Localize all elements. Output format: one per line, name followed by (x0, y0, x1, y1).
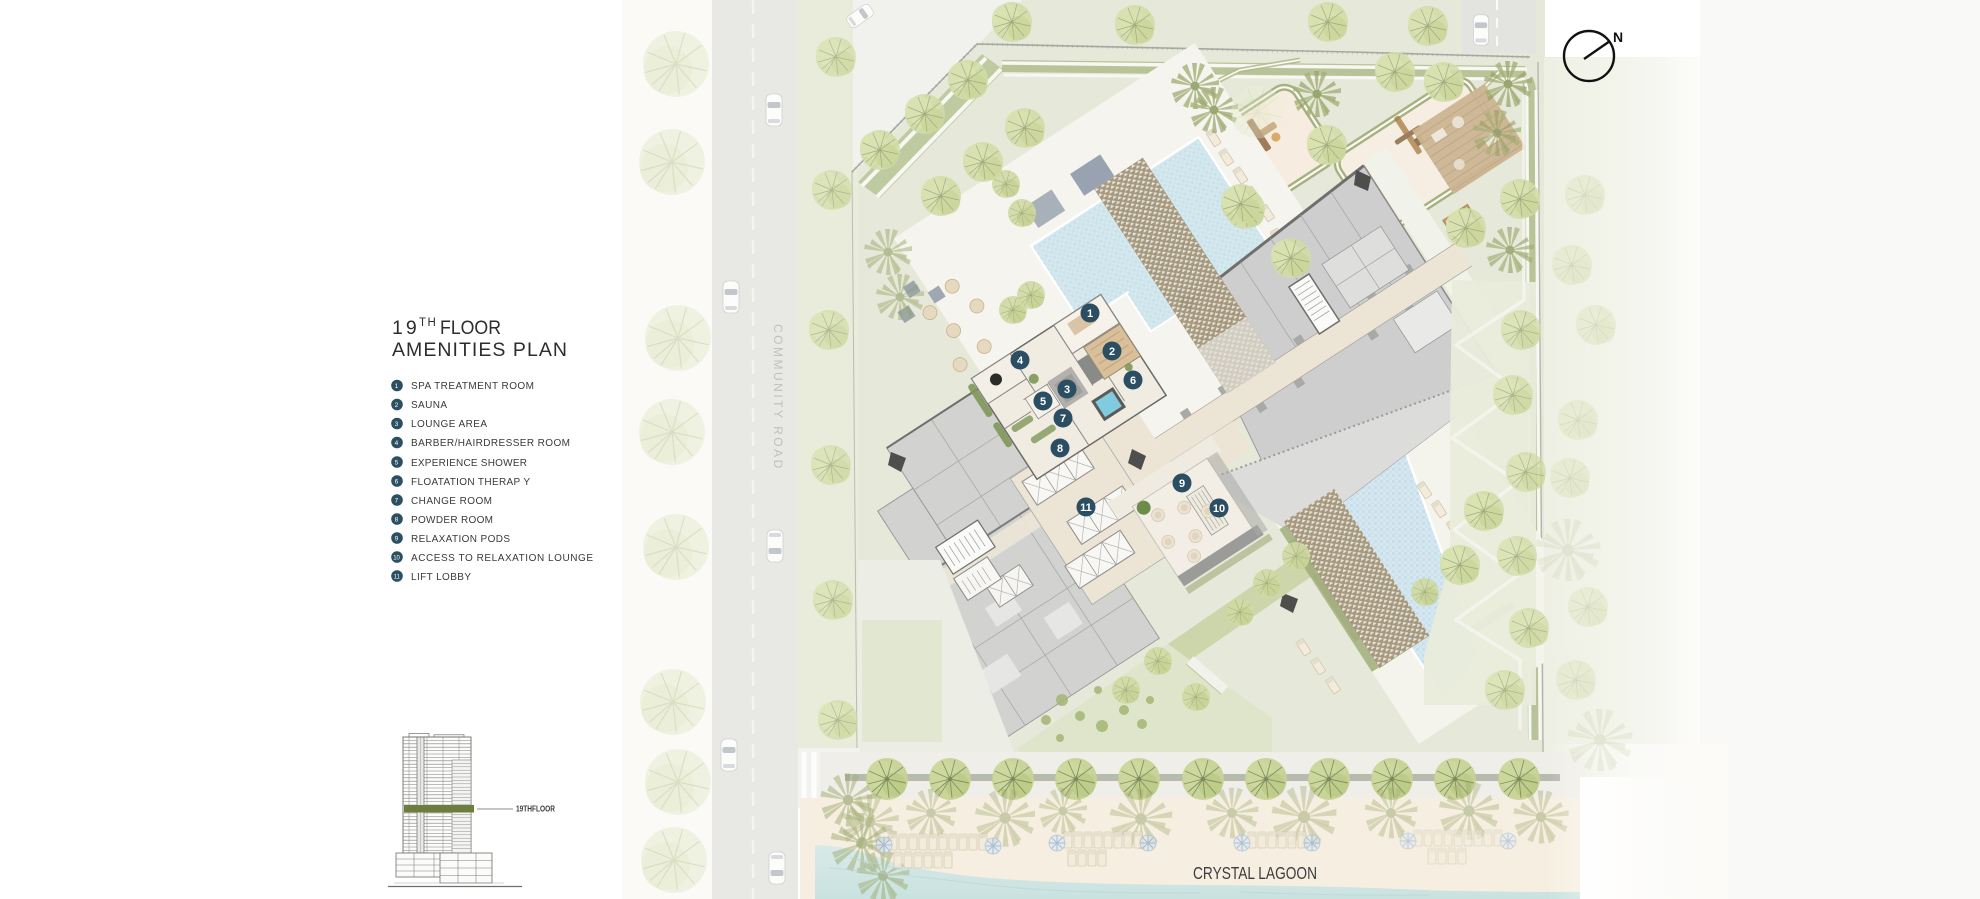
svg-text:1: 1 (395, 383, 399, 390)
svg-text:CRYSTAL LAGOON: CRYSTAL LAGOON (1193, 863, 1317, 883)
svg-text:5: 5 (1040, 396, 1046, 408)
svg-text:BARBER/HAIRDRESSER ROOM: BARBER/HAIRDRESSER ROOM (411, 438, 570, 449)
svg-text:EXPERIENCE SHOWER: EXPERIENCE SHOWER (411, 458, 527, 469)
svg-text:7: 7 (395, 498, 399, 505)
svg-text:3: 3 (395, 421, 399, 428)
svg-text:ACCESS TO RELAXATION LOUNGE: ACCESS TO RELAXATION LOUNGE (411, 553, 593, 564)
svg-text:1: 1 (1087, 308, 1093, 320)
svg-text:CHANGE ROOM: CHANGE ROOM (411, 496, 492, 507)
svg-text:2: 2 (395, 402, 399, 409)
svg-text:11: 11 (394, 575, 401, 581)
svg-text:4: 4 (395, 440, 399, 447)
svg-text:5: 5 (395, 460, 399, 467)
svg-text:3: 3 (1064, 384, 1070, 396)
svg-text:TH: TH (419, 317, 437, 329)
svg-text:6: 6 (395, 479, 399, 486)
svg-text:FLOATATION THERAP Y: FLOATATION THERAP Y (411, 477, 530, 488)
svg-text:2: 2 (1109, 346, 1115, 358)
svg-text:N: N (1613, 29, 1623, 45)
svg-text:LIFT LOBBY: LIFT LOBBY (411, 572, 471, 583)
svg-text:POWDER ROOM: POWDER ROOM (411, 515, 493, 526)
svg-text:COMMUNITY ROAD: COMMUNITY ROAD (771, 324, 785, 471)
svg-text:8: 8 (1057, 443, 1063, 455)
svg-text:RELAXATION PODS: RELAXATION PODS (411, 534, 510, 545)
svg-text:7: 7 (1060, 413, 1066, 425)
svg-text:9: 9 (395, 536, 399, 543)
svg-text:19: 19 (392, 317, 420, 339)
svg-text:19THFLOOR: 19THFLOOR (516, 805, 555, 814)
svg-text:SAUNA: SAUNA (411, 400, 447, 411)
svg-text:9: 9 (1179, 478, 1185, 490)
svg-text:11: 11 (1080, 502, 1092, 514)
svg-text:4: 4 (1017, 355, 1024, 367)
svg-text:LOUNGE AREA: LOUNGE AREA (411, 419, 487, 430)
svg-text:6: 6 (1130, 375, 1136, 387)
svg-text:FLOOR: FLOOR (440, 317, 501, 339)
svg-text:AMENITIES PLAN: AMENITIES PLAN (392, 339, 568, 361)
svg-text:SPA TREATMENT ROOM: SPA TREATMENT ROOM (411, 381, 534, 392)
svg-text:10: 10 (1213, 503, 1225, 515)
svg-text:10: 10 (393, 556, 400, 562)
svg-text:8: 8 (395, 517, 399, 524)
